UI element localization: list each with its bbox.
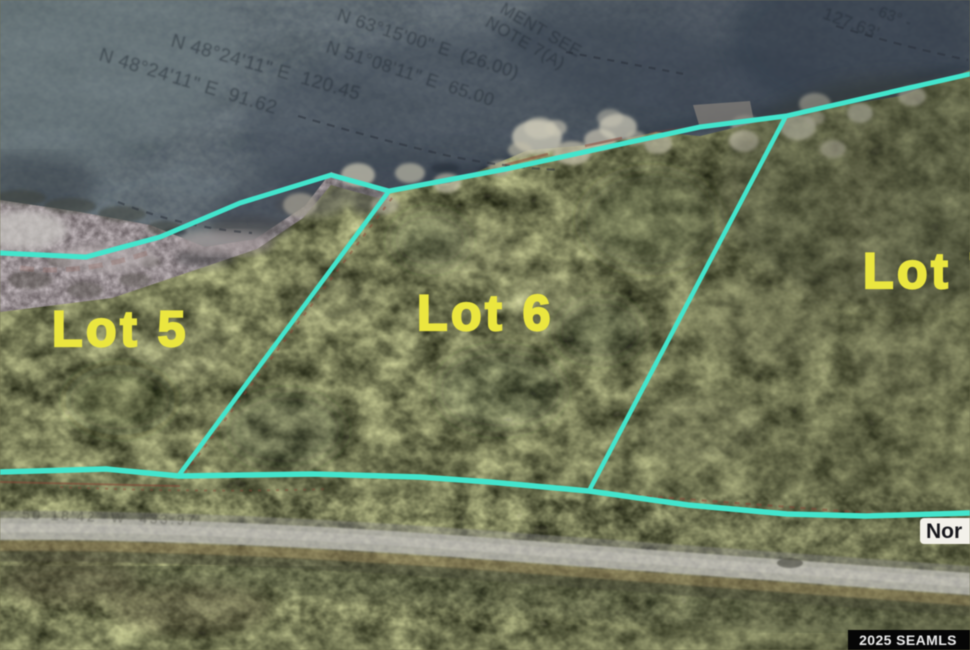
svg-text:Lot 7: Lot 7 xyxy=(863,243,970,299)
svg-text:2025 SEAMLS: 2025 SEAMLS xyxy=(859,632,957,648)
svg-text:Nor: Nor xyxy=(926,520,962,543)
svg-text:Lot 6: Lot 6 xyxy=(417,285,554,341)
svg-text:Lot 5: Lot 5 xyxy=(52,301,189,357)
